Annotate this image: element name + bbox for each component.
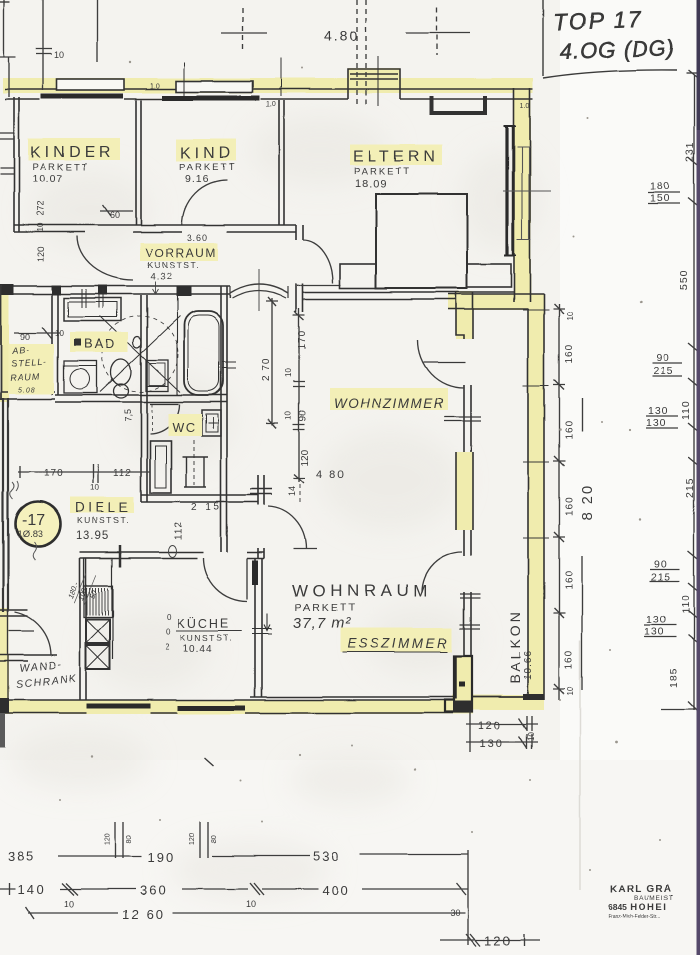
svg-text:AB-: AB-	[10, 345, 30, 356]
svg-text:385: 385	[8, 849, 36, 864]
svg-text:10.44: 10.44	[183, 644, 213, 655]
svg-text:10: 10	[54, 50, 64, 60]
svg-text:400: 400	[322, 883, 350, 898]
svg-text:112: 112	[173, 521, 184, 540]
svg-text:120: 120	[478, 720, 502, 732]
svg-text:10.07: 10.07	[32, 173, 63, 185]
svg-text:530: 530	[313, 849, 341, 864]
svg-text:VORRAUM: VORRAUM	[145, 246, 217, 260]
svg-text:KUNSTST.: KUNSTST.	[77, 515, 130, 525]
svg-text:130: 130	[646, 417, 667, 429]
svg-text:0: 0	[166, 628, 171, 637]
svg-text:5.08: 5.08	[18, 387, 36, 394]
svg-text:10: 10	[246, 899, 256, 909]
svg-text:DIELE: DIELE	[75, 500, 132, 515]
svg-text:120: 120	[189, 833, 196, 845]
svg-text:150: 150	[650, 192, 671, 204]
svg-text:120: 120	[104, 833, 111, 845]
svg-text:7,5: 7,5	[123, 409, 133, 422]
svg-text:TOP 17: TOP 17	[552, 6, 643, 35]
svg-text:RAUM: RAUM	[9, 371, 40, 383]
svg-text:10: 10	[90, 483, 99, 492]
svg-text:130: 130	[648, 405, 669, 417]
svg-text:10: 10	[527, 732, 536, 741]
svg-text:180: 180	[650, 180, 671, 192]
svg-text:9.16: 9.16	[185, 173, 209, 185]
svg-text:4 80: 4 80	[316, 469, 345, 481]
svg-text:ESSZIMMER: ESSZIMMER	[347, 636, 450, 651]
svg-text:10: 10	[284, 368, 293, 377]
svg-text:4.32: 4.32	[150, 271, 173, 282]
svg-text:PARKETT: PARKETT	[32, 162, 89, 173]
svg-text:130: 130	[644, 626, 665, 638]
svg-text:185: 185	[668, 667, 680, 688]
svg-text:90: 90	[656, 352, 670, 364]
svg-text:PARKETT: PARKETT	[295, 602, 357, 614]
svg-text:1.0: 1.0	[520, 103, 530, 110]
svg-text:30: 30	[450, 908, 460, 918]
svg-text:WOHNZIMMER: WOHNZIMMER	[334, 396, 445, 411]
svg-text:160: 160	[564, 570, 575, 590]
svg-text:0: 0	[167, 613, 172, 622]
svg-text:KUNSTST.: KUNSTST.	[147, 260, 200, 270]
svg-text:ELTERN: ELTERN	[353, 148, 439, 165]
svg-text:112: 112	[113, 468, 132, 479]
svg-text:10.66: 10.66	[523, 650, 534, 680]
svg-text:10: 10	[36, 223, 45, 232]
svg-text:160: 160	[564, 649, 575, 669]
svg-text:13.95: 13.95	[76, 530, 110, 542]
svg-text:272: 272	[35, 201, 45, 216]
svg-text:3.60: 3.60	[187, 233, 209, 243]
svg-text:18.09: 18.09	[355, 178, 388, 190]
svg-text:10: 10	[64, 899, 74, 909]
svg-text:60: 60	[110, 210, 120, 220]
svg-text:80: 80	[211, 835, 218, 843]
svg-text:120: 120	[300, 449, 311, 466]
svg-text:WC: WC	[172, 420, 197, 435]
svg-text:90: 90	[298, 409, 309, 421]
svg-text:-17: -17	[22, 512, 45, 529]
svg-text:KÜCHE: KÜCHE	[177, 617, 231, 631]
svg-text:80: 80	[126, 835, 133, 843]
svg-text:160: 160	[564, 344, 575, 364]
svg-text:4.OG (DG): 4.OG (DG)	[559, 35, 675, 64]
svg-text:190: 190	[148, 850, 176, 865]
svg-text:14: 14	[287, 486, 297, 496]
svg-text:120: 120	[36, 247, 46, 262]
svg-text:110: 110	[680, 400, 692, 420]
svg-text:2 15: 2 15	[191, 502, 222, 513]
svg-text:90: 90	[20, 332, 30, 342]
svg-text:2 70: 2 70	[261, 358, 272, 381]
svg-text:4.80: 4.80	[324, 28, 359, 44]
svg-text:BAUMEIST: BAUMEIST	[634, 895, 674, 902]
svg-text:360: 360	[140, 883, 168, 898]
svg-text:170: 170	[297, 330, 308, 350]
svg-text:231: 231	[684, 141, 696, 162]
svg-text:12 60: 12 60	[122, 907, 165, 922]
svg-text:37,7 m²: 37,7 m²	[293, 615, 351, 632]
svg-text:Franz-Mich-Felder-Str...: Franz-Mich-Felder-Str...	[608, 914, 661, 920]
svg-text:170: 170	[44, 468, 64, 479]
svg-text:8 20: 8 20	[579, 484, 596, 521]
svg-text:10: 10	[284, 411, 293, 420]
svg-text:PARKETT: PARKETT	[354, 166, 411, 177]
svg-text:1.0: 1.0	[266, 101, 276, 108]
svg-text:BALKON: BALKON	[507, 609, 523, 684]
svg-text:215: 215	[684, 477, 696, 498]
svg-text:110: 110	[680, 594, 692, 614]
svg-text:550: 550	[678, 269, 690, 290]
svg-text:90: 90	[654, 558, 668, 570]
svg-text:120: 120	[484, 933, 512, 948]
svg-text:2: 2	[165, 643, 170, 652]
svg-text:215: 215	[653, 365, 674, 377]
svg-text:WOHNRAUM: WOHNRAUM	[292, 581, 432, 600]
svg-text:KUNSTST.: KUNSTST.	[180, 633, 233, 643]
svg-text:6845 HOHEI: 6845 HOHEI	[608, 902, 668, 913]
svg-text:KINDER: KINDER	[30, 144, 114, 161]
svg-text:BAD: BAD	[84, 336, 117, 351]
svg-text:130: 130	[480, 738, 504, 750]
svg-text:1.0: 1.0	[150, 83, 160, 90]
svg-text:1Ø.83: 1Ø.83	[17, 529, 43, 540]
svg-text:10: 10	[566, 312, 575, 321]
svg-text:10: 10	[566, 687, 575, 696]
svg-text:PARKETT: PARKETT	[179, 162, 236, 173]
svg-text:130: 130	[646, 614, 667, 626]
svg-text:10: 10	[55, 329, 64, 338]
svg-text:140: 140	[18, 882, 46, 897]
svg-text:160: 160	[564, 420, 575, 440]
svg-text:KARL GRA: KARL GRA	[610, 884, 672, 895]
svg-text:215: 215	[651, 571, 672, 583]
svg-text:160: 160	[564, 496, 575, 516]
svg-text:KIND: KIND	[180, 145, 234, 162]
